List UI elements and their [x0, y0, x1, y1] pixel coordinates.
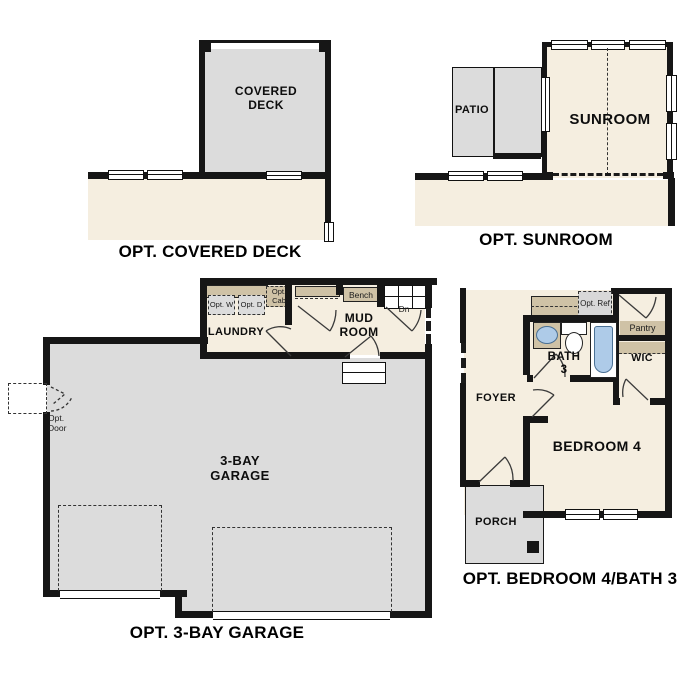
door-swing-symbol — [476, 453, 516, 485]
wall — [668, 178, 675, 226]
opt-washer-box: Opt. W — [208, 295, 235, 315]
window-symbol — [603, 509, 638, 520]
opt-dryer-box: Opt. D — [238, 295, 265, 315]
wall — [493, 153, 541, 159]
bench-label: Bench — [349, 290, 373, 300]
optional-opening-line — [426, 308, 431, 344]
room-label-bath3: BATH 3 — [543, 351, 585, 377]
optional-wall-line — [553, 173, 663, 176]
caption-sunroom: OPT. SUNROOM — [416, 230, 676, 250]
window-symbol — [666, 75, 677, 112]
wall — [200, 278, 437, 285]
caption-covered-deck: OPT. COVERED DECK — [80, 242, 340, 262]
wall — [425, 278, 432, 308]
wall — [336, 285, 343, 295]
window-symbol — [565, 509, 600, 520]
opt-door-label: Opt. Door — [48, 414, 84, 433]
room-label-bedroom4: BEDROOM 4 — [532, 439, 662, 455]
wall — [292, 352, 350, 359]
wall — [325, 179, 331, 222]
steps-symbol — [342, 362, 386, 384]
sliding-door-symbol — [541, 77, 550, 132]
opt-door-outline — [8, 383, 47, 414]
cubby-shelf-line — [295, 298, 338, 299]
garage-bay-outline — [58, 505, 162, 591]
plan-covered-deck: COVERED DECK OPT. COVERED DECK — [80, 30, 340, 265]
window-symbol — [324, 222, 334, 242]
opt-dryer-label: Opt. D — [241, 301, 263, 309]
opt-ref-label: Opt. Ref — [580, 300, 610, 309]
plan-sunroom: PATIO SUNROOM OPT. SUNROOM — [410, 35, 680, 250]
deck-post — [199, 40, 211, 52]
window-symbol — [487, 171, 523, 181]
room-label-patio: PATIO — [447, 104, 497, 116]
garage-door-symbol — [60, 590, 160, 599]
wall — [199, 40, 205, 172]
window-symbol — [147, 170, 183, 180]
caption-bedroom4: OPT. BEDROOM 4/BATH 3 — [455, 569, 685, 589]
wall — [43, 337, 50, 385]
window-symbol — [591, 40, 625, 50]
room-label-mudroom: MUD ROOM — [331, 312, 387, 339]
deck-post — [319, 40, 331, 52]
door-swing-symbol — [617, 293, 659, 322]
plan-bedroom4-bath3: Opt. Ref BATH 3 Pantry WIC — [455, 285, 685, 590]
garage-bay-outline — [212, 527, 392, 612]
plan-3-bay-garage: Opt. W Opt. D Opt. Cab Bench Dn — [5, 276, 435, 651]
wall — [415, 173, 553, 180]
opt-washer-label: Opt. W — [210, 301, 233, 309]
sink-symbol — [536, 326, 558, 344]
wall — [200, 278, 207, 359]
room-garage — [47, 344, 200, 358]
wall — [43, 412, 50, 597]
wall — [43, 337, 208, 344]
room-label-sunroom: SUNROOM — [567, 112, 653, 129]
room-label-garage: 3-BAY GARAGE — [200, 454, 280, 483]
wall — [460, 288, 466, 343]
window-symbol — [108, 170, 144, 180]
room-label-covered-deck: COVERED DECK — [224, 85, 308, 112]
door-swing-symbol — [620, 376, 650, 403]
window-symbol — [448, 171, 484, 181]
mudroom-cubby — [295, 286, 340, 297]
wall — [199, 40, 331, 43]
wall — [425, 344, 432, 617]
tub-basin — [594, 326, 613, 373]
garage-door-symbol — [213, 611, 390, 620]
porch-post — [527, 541, 539, 553]
room-house-interior — [415, 180, 674, 226]
wall — [377, 285, 384, 307]
room-label-wic: WIC — [623, 353, 661, 365]
wall — [285, 285, 292, 325]
room-label-porch: PORCH — [466, 516, 526, 528]
window-symbol — [666, 123, 677, 160]
tub-symbol — [590, 322, 617, 378]
wall — [613, 398, 620, 405]
floorplan-canvas: COVERED DECK OPT. COVERED DECK PATIO SUN… — [0, 0, 687, 687]
wall — [542, 130, 547, 178]
opt-ref-box: Opt. Ref — [578, 291, 612, 318]
room-label-foyer: FOYER — [466, 392, 526, 404]
wall — [523, 423, 530, 480]
door-swing-symbol — [48, 384, 78, 414]
wall — [665, 288, 672, 518]
door-swing-symbol — [529, 386, 559, 420]
counter-upper-cabinet-line — [531, 306, 577, 307]
mudroom-bench: Bench — [343, 287, 379, 302]
wall — [523, 315, 530, 375]
pantry-shelf: Pantry — [620, 321, 665, 335]
door-swing-symbol — [384, 305, 424, 335]
window-symbol — [629, 40, 666, 50]
wall — [527, 315, 618, 322]
wall-continuation-line — [461, 343, 466, 383]
wall — [325, 40, 331, 172]
pantry-label: Pantry — [629, 323, 655, 333]
window-symbol — [551, 40, 588, 50]
caption-garage: OPT. 3-BAY GARAGE — [37, 623, 397, 643]
room-label-laundry: LAUNDRY — [203, 326, 269, 338]
room-house-interior — [88, 179, 325, 240]
sliding-door-symbol — [266, 171, 302, 180]
wall — [542, 42, 547, 77]
